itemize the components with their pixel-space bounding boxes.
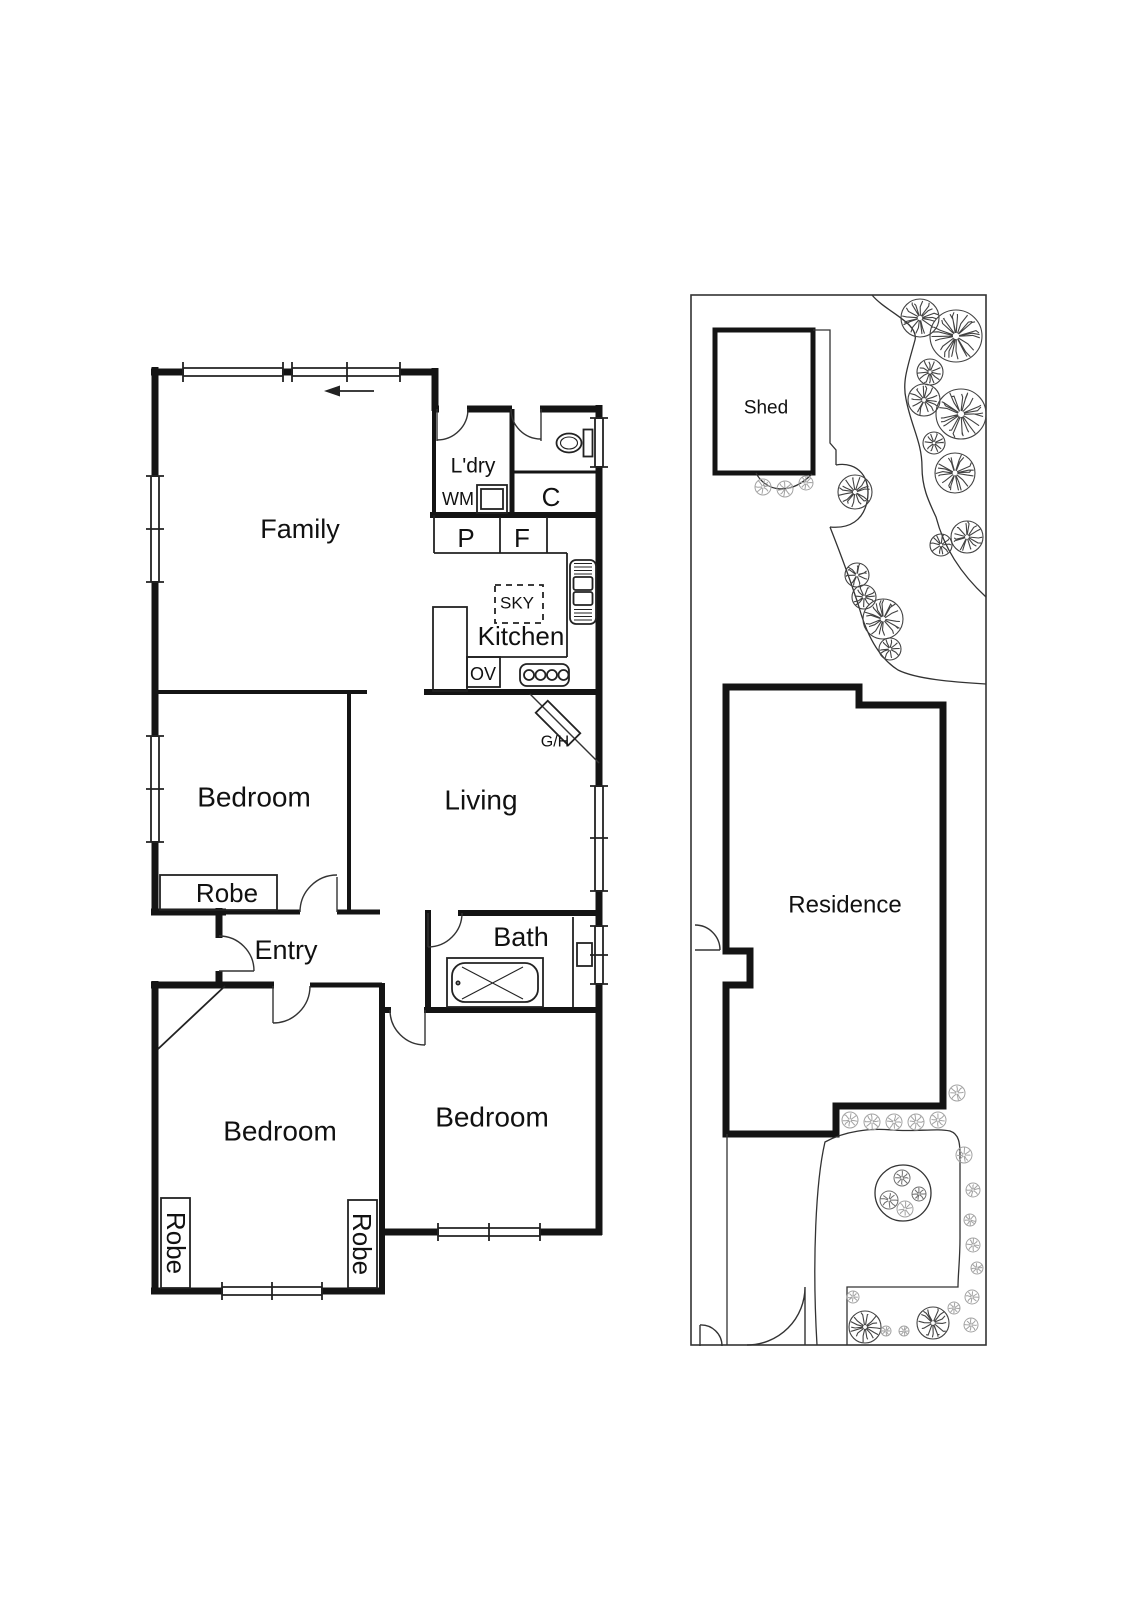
floor-plan: Family L'dry WM C P F SKY Kitchen OV G/H… xyxy=(146,362,608,1300)
tree-symbol xyxy=(912,1187,926,1201)
tree-symbol xyxy=(964,1318,978,1332)
room-label-laundry: L'dry xyxy=(451,455,496,478)
floorplan-site-drawing: Family L'dry WM C P F SKY Kitchen OV G/H… xyxy=(0,0,1132,1600)
tree-symbol xyxy=(930,1112,946,1128)
fixture-label-oven: OV xyxy=(470,664,496,684)
fixture-label-washing-machine: WM xyxy=(442,489,474,509)
tree-symbol xyxy=(908,384,940,416)
garden-beds xyxy=(727,295,986,1345)
robe-label-east: Robe xyxy=(347,1213,377,1275)
interior-walls xyxy=(157,409,599,1049)
wc-door xyxy=(511,409,541,441)
bathtub-icon xyxy=(447,958,543,1007)
tree-symbol xyxy=(917,359,943,385)
tree-symbol xyxy=(901,299,939,337)
vanity-box xyxy=(577,943,592,966)
tree-symbol xyxy=(864,1114,880,1130)
room-label-living: Living xyxy=(444,785,517,816)
site-plan: Shed Residence xyxy=(691,295,986,1346)
tree-symbol xyxy=(930,310,982,362)
driveway-gate xyxy=(747,1287,805,1345)
tree-symbol xyxy=(886,1114,902,1130)
bedroom-left-door xyxy=(300,875,337,912)
room-label-bedroom-left: Bedroom xyxy=(197,782,311,813)
tree-symbol xyxy=(956,1147,972,1163)
room-label-kitchen: Kitchen xyxy=(478,621,565,651)
tree-symbol xyxy=(971,1262,983,1274)
tree-symbol xyxy=(863,599,903,639)
room-label-bath: Bath xyxy=(493,922,549,952)
tree-symbol xyxy=(935,453,975,493)
exterior-walls xyxy=(151,367,602,1294)
gas-heater-icon xyxy=(530,694,599,763)
room-label-bedroom-bottom-right: Bedroom xyxy=(435,1102,549,1133)
tree-symbol xyxy=(936,389,986,439)
toilet-icon xyxy=(557,430,593,457)
fixture-label-cupboard: C xyxy=(542,482,561,512)
bath-door xyxy=(428,913,462,947)
sink-icon xyxy=(570,560,596,624)
tree-symbol xyxy=(881,1326,891,1336)
room-label-entry: Entry xyxy=(254,935,318,965)
pedestrian-gate xyxy=(700,1325,722,1346)
floorplan-page: Family L'dry WM C P F SKY Kitchen OV G/H… xyxy=(0,0,1132,1600)
tree-symbol xyxy=(949,1085,965,1101)
windows xyxy=(146,362,608,1300)
tree-symbol xyxy=(894,1170,910,1186)
laundry-door xyxy=(437,409,468,441)
tree-symbol xyxy=(964,1214,976,1226)
tree-symbol xyxy=(951,521,983,553)
bedroom-bottom-left-door xyxy=(273,986,310,1023)
tree-symbol xyxy=(966,1183,980,1197)
site-label-residence: Residence xyxy=(788,892,901,919)
tree-symbol xyxy=(838,475,872,509)
trees-layer xyxy=(755,299,986,1343)
entry-arrow-icon xyxy=(324,386,374,397)
room-label-bedroom-bottom-left: Bedroom xyxy=(223,1116,337,1147)
tree-symbol xyxy=(880,1191,898,1209)
bedroom-bottom-right-door xyxy=(390,1010,425,1045)
fixture-label-pantry: P xyxy=(457,523,474,553)
tree-symbol xyxy=(897,1201,913,1217)
tree-symbol xyxy=(965,1290,979,1304)
fixture-label-fridge: F xyxy=(514,523,530,553)
washing-machine-icon xyxy=(477,485,507,513)
tree-symbol xyxy=(849,1311,881,1343)
tree-symbol xyxy=(917,1307,949,1339)
tree-symbol xyxy=(842,1112,858,1128)
room-label-family: Family xyxy=(260,514,340,544)
tree-symbol xyxy=(930,534,952,556)
fixture-label-skylight: SKY xyxy=(500,594,534,613)
tree-symbol xyxy=(847,1291,859,1303)
tree-symbol xyxy=(899,1326,909,1336)
site-label-shed: Shed xyxy=(744,398,788,419)
robe-label-west: Robe xyxy=(161,1212,191,1274)
tree-symbol xyxy=(966,1238,980,1252)
side-passage-gate xyxy=(695,925,720,950)
front-door xyxy=(219,936,254,971)
shed-leanto xyxy=(813,330,836,465)
tree-symbol xyxy=(908,1114,924,1130)
tree-symbol xyxy=(879,638,901,660)
floor-plan-labels: Family L'dry WM C P F SKY Kitchen OV G/H… xyxy=(161,455,569,1276)
tree-symbol xyxy=(948,1302,960,1314)
tree-symbol xyxy=(845,563,869,587)
fixture-label-gas-heater: G/H xyxy=(541,734,569,751)
tree-symbol xyxy=(923,432,945,454)
kitchen-island xyxy=(433,607,467,691)
robe-label-bedroom-left: Robe xyxy=(196,878,258,908)
cooktop-icon xyxy=(520,664,569,686)
